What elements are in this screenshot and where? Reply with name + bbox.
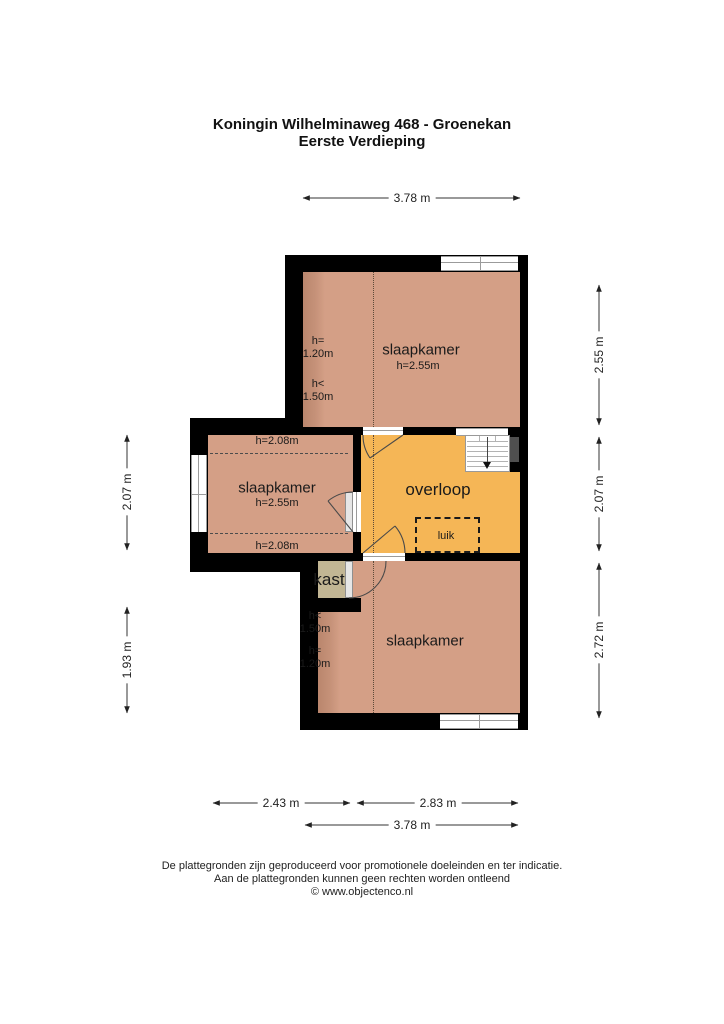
- dim-label-bottom-1: 2.43 m: [258, 796, 305, 810]
- wall-bedroom-left-bottom: [190, 553, 318, 572]
- bedroom-bottom-slope-high: h= 1.20m: [300, 645, 331, 671]
- window-left: [191, 455, 207, 532]
- bedroom-top-label: slaapkamer: [382, 342, 460, 359]
- bedroom-left-height: h=2.55m: [255, 497, 298, 509]
- height-contour-line: [373, 561, 374, 713]
- door-opening-bedroom-bottom: [363, 553, 405, 561]
- threshold-line: [363, 556, 405, 557]
- wall-landing-bottom: [318, 553, 520, 561]
- dim-label-bottom-total: 3.78 m: [389, 818, 436, 832]
- dim-label-right-3: 2.72 m: [592, 617, 606, 664]
- loft-hatch-label: luik: [438, 530, 455, 542]
- dim-label-right-2: 2.07 m: [592, 471, 606, 518]
- threshold-line: [363, 430, 403, 431]
- footer-disclaimer-1: De plattegronden zijn geproduceerd voor …: [0, 860, 724, 872]
- height-contour-line: [210, 533, 348, 534]
- door-panel-bedroom-left: [345, 492, 353, 532]
- dim-label-bottom-2: 2.83 m: [415, 796, 462, 810]
- dim-label-left-2: 1.93 m: [120, 637, 134, 684]
- stair-winder-line: [479, 436, 480, 441]
- bedroom-left-label: slaapkamer: [238, 480, 316, 497]
- bedroom-bottom-label: slaapkamer: [386, 633, 464, 650]
- window-bottom: [440, 714, 518, 729]
- height-contour-line: [373, 435, 374, 553]
- bedroom-top-slope-high: h= 1.20m: [303, 335, 334, 361]
- window-top: [441, 256, 518, 271]
- staircase: [465, 435, 510, 472]
- bedroom-top-slope-low: h< 1.50m: [303, 378, 334, 404]
- page-title: Koningin Wilhelminaweg 468 - Groenekan: [0, 116, 724, 133]
- height-contour-line: [373, 272, 374, 427]
- dim-label-left-1: 2.07 m: [120, 469, 134, 516]
- wall-bedroom-top-left: [285, 255, 303, 435]
- stair-direction-line: [487, 437, 488, 463]
- landing-label: overloop: [405, 480, 470, 500]
- door-opening-bedroom-top: [363, 427, 403, 435]
- bedroom-left-edge-top: h=2.08m: [255, 435, 298, 447]
- footer-copyright: © www.objectenco.nl: [0, 886, 724, 898]
- dim-label-top: 3.78 m: [389, 191, 436, 205]
- height-contour-line: [210, 453, 348, 454]
- dim-label-right-1: 2.55 m: [592, 332, 606, 379]
- bedroom-top-height: h=2.55m: [396, 360, 439, 372]
- page-subtitle: Eerste Verdieping: [0, 133, 724, 150]
- door-panel-closet: [345, 561, 353, 598]
- window-mullion: [479, 715, 480, 728]
- bedroom-left-edge-bottom: h=2.08m: [255, 540, 298, 552]
- bedroom-bottom-slope-low: h< 1.50m: [300, 610, 331, 636]
- threshold-line: [356, 492, 357, 532]
- stairs-down-arrow-icon: [483, 462, 491, 469]
- closet-label: kast: [313, 570, 344, 590]
- window-mullion: [192, 494, 206, 495]
- footer-disclaimer-2: Aan de plattegronden kunnen geen rechten…: [0, 873, 724, 885]
- door-opening-bedroom-left: [353, 492, 361, 532]
- duct-shaft: [510, 437, 519, 462]
- stair-winder-line: [495, 436, 496, 441]
- floorplan-page: Koningin Wilhelminaweg 468 - Groenekan E…: [0, 0, 724, 1024]
- window-mullion: [480, 257, 481, 270]
- wall-right: [520, 255, 528, 730]
